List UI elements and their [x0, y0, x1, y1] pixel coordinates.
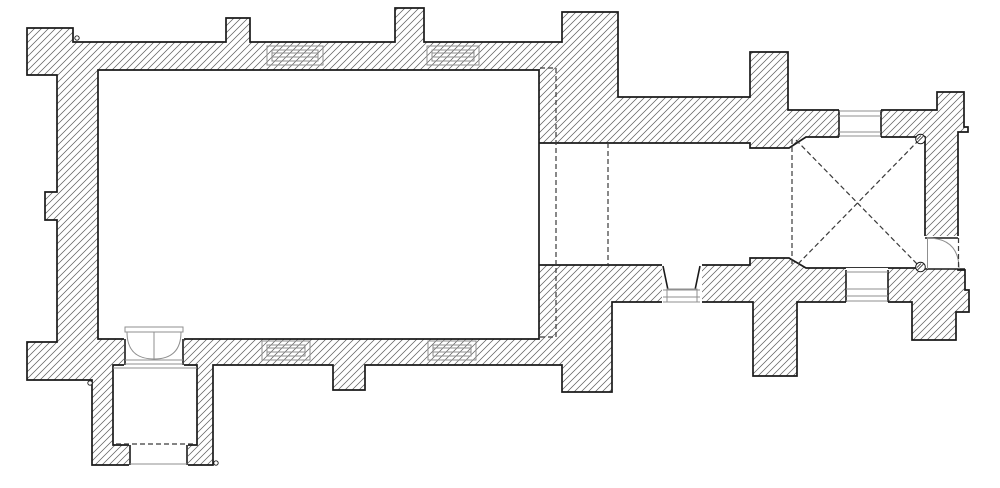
porch-corner-marker	[214, 461, 218, 465]
porch-interior	[113, 365, 197, 445]
nw-corner-marker	[75, 36, 79, 40]
sw-corner-marker	[88, 381, 92, 385]
south-door-head-band	[125, 327, 183, 332]
drawing-canvas	[0, 0, 1000, 488]
chancel-and-tower-interior	[539, 137, 925, 268]
nave-interior	[98, 70, 539, 339]
tower-east-door-gap	[924, 236, 961, 269]
tower-south-window-gap	[846, 268, 888, 304]
floor-plan-svg	[0, 0, 1000, 488]
wall-structure	[27, 8, 969, 465]
tower-north-window-gap	[839, 108, 881, 139]
porch-entrance-gap	[129, 443, 188, 467]
